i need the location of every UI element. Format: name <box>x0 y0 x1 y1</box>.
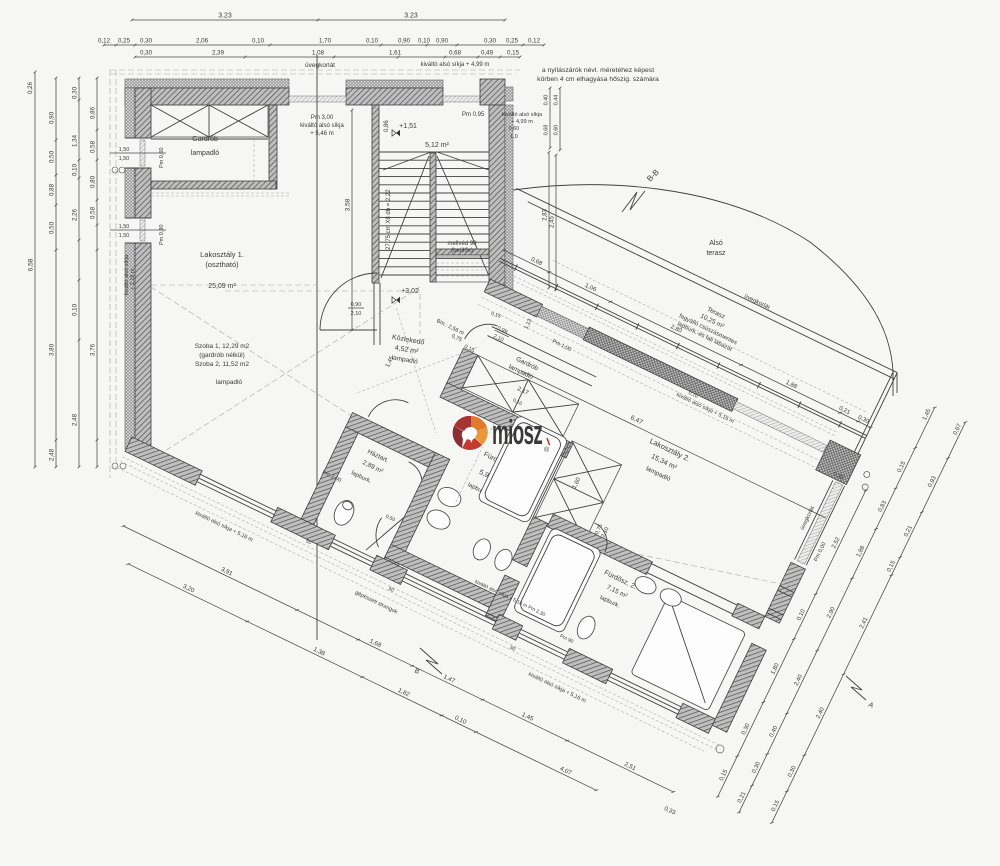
svg-text:0,12: 0,12 <box>528 38 541 45</box>
svg-text:3.23: 3.23 <box>404 13 418 20</box>
svg-text:0,40: 0,40 <box>544 95 550 106</box>
svg-text:2,48: 2,48 <box>72 413 79 426</box>
svg-text:2,45: 2,45 <box>550 216 556 228</box>
svg-text:lampadló: lampadló <box>191 150 220 157</box>
svg-text:mellvéd 90: mellvéd 90 <box>447 241 477 247</box>
svg-text:+ 5,46 m: + 5,46 m <box>310 131 334 137</box>
svg-text:0,10: 0,10 <box>252 38 265 45</box>
svg-text:0,12: 0,12 <box>98 38 111 45</box>
svg-text:Pm 0,90: Pm 0,90 <box>159 225 165 245</box>
svg-text:0,10: 0,10 <box>418 38 431 45</box>
svg-text:kiváltó alsó síkja: kiváltó alsó síkja <box>300 123 344 129</box>
svg-text:0,30: 0,30 <box>72 86 79 99</box>
svg-text:kiváltó alsó síkja + 4,99 m: kiváltó alsó síkja + 4,99 m <box>421 62 490 68</box>
svg-text:0,88: 0,88 <box>49 183 56 196</box>
svg-text:Pm 0,60: Pm 0,60 <box>159 148 165 168</box>
svg-text:0,44: 0,44 <box>554 95 560 106</box>
svg-text:miosz: miosz <box>492 413 542 451</box>
svg-text:1,08: 1,08 <box>312 50 325 57</box>
svg-text:0,30: 0,30 <box>484 38 497 45</box>
svg-text:kiváltó alsó síkja: kiváltó alsó síkja <box>502 112 543 118</box>
svg-text:Alsó: Alsó <box>709 240 723 247</box>
svg-text:0,90: 0,90 <box>398 38 411 45</box>
svg-text:Szoba 2, 11,52 m2: Szoba 2, 11,52 m2 <box>195 361 249 368</box>
svg-text:0,60: 0,60 <box>554 125 560 136</box>
svg-text:lampadló: lampadló <box>216 379 243 386</box>
svg-text:0,50: 0,50 <box>49 221 56 234</box>
svg-text:0,15: 0,15 <box>507 50 520 57</box>
svg-text:0,90: 0,90 <box>49 111 56 124</box>
svg-text:Gardrób: Gardrób <box>192 136 218 143</box>
svg-text:0,58: 0,58 <box>90 140 97 153</box>
svg-text:a nyílászárók névl. méretéhez: a nyílászárók névl. méretéhez képest <box>542 67 654 74</box>
svg-text:3.23: 3.23 <box>218 13 232 20</box>
svg-text:0,10: 0,10 <box>72 303 79 316</box>
svg-text:+ 4,99 m: + 4,99 m <box>511 119 533 125</box>
svg-text:+1,51: +1,51 <box>399 123 417 130</box>
svg-text:1,34: 1,34 <box>72 134 79 147</box>
svg-text:1,50: 1,50 <box>119 156 130 162</box>
svg-text:Pm 0,95: Pm 0,95 <box>462 112 485 118</box>
svg-text:0,60: 0,60 <box>509 126 520 132</box>
svg-text:2,06: 2,06 <box>196 38 209 45</box>
svg-text:1,61: 1,61 <box>389 50 402 57</box>
svg-text:(beülős): (beülős) <box>451 248 473 254</box>
svg-text:1,0: 1,0 <box>510 134 518 140</box>
svg-text:0,86: 0,86 <box>384 120 390 132</box>
svg-text:(osztható): (osztható) <box>205 260 239 269</box>
svg-text:5,12 m²: 5,12 m² <box>425 142 449 149</box>
svg-text:Pm 3,00: Pm 3,00 <box>311 115 334 121</box>
svg-text:0,30: 0,30 <box>140 50 153 57</box>
svg-text:0,10: 0,10 <box>72 163 79 176</box>
svg-text:2,39: 2,39 <box>212 50 225 57</box>
svg-text:0,50: 0,50 <box>49 150 56 163</box>
svg-text:Szoba 1, 12,29 m2: Szoba 1, 12,29 m2 <box>195 343 250 350</box>
svg-text:+ 2,19 m: + 2,19 m <box>130 268 136 290</box>
svg-text:0,58: 0,58 <box>90 206 97 219</box>
svg-text:3,58: 3,58 <box>345 198 352 211</box>
svg-text:0,49: 0,49 <box>481 50 494 57</box>
svg-text:1,50: 1,50 <box>119 233 130 239</box>
svg-text:1,70: 1,70 <box>319 38 332 45</box>
svg-text:0,26: 0,26 <box>27 81 34 94</box>
svg-text:0,30: 0,30 <box>140 38 153 45</box>
svg-text:3,76: 3,76 <box>90 343 97 356</box>
svg-text:1,50: 1,50 <box>119 147 130 153</box>
svg-text:(gardrób nélkül): (gardrób nélkül) <box>199 352 245 359</box>
svg-text:0,25: 0,25 <box>506 38 519 45</box>
svg-text:1,50: 1,50 <box>119 224 130 230</box>
svg-text:0,10: 0,10 <box>366 38 379 45</box>
svg-text:6,58: 6,58 <box>28 258 35 271</box>
svg-text:2,26: 2,26 <box>72 208 79 221</box>
svg-text:0,68: 0,68 <box>544 125 550 136</box>
svg-text:0,80: 0,80 <box>90 175 97 188</box>
svg-text:2,10: 2,10 <box>351 311 362 317</box>
svg-text:0,90: 0,90 <box>436 38 449 45</box>
svg-text:0,86: 0,86 <box>90 106 97 119</box>
svg-text:üvegkorlát: üvegkorlát <box>305 62 335 69</box>
svg-text:körben 4 cm elhagyása hőszig.: körben 4 cm elhagyása hőszig. számára <box>537 76 659 83</box>
svg-text:0,68: 0,68 <box>449 50 462 57</box>
svg-text:2,48: 2,48 <box>49 448 56 461</box>
svg-text:0,25: 0,25 <box>118 38 131 45</box>
svg-text:25,09 m²: 25,09 m² <box>208 283 236 290</box>
svg-text:0,90: 0,90 <box>351 302 362 308</box>
svg-text:Lakosztály 1.: Lakosztály 1. <box>200 250 244 259</box>
svg-text:terasz: terasz <box>706 250 726 257</box>
svg-text:3,80: 3,80 <box>49 343 56 356</box>
svg-text:27,75 cm X8 db = 2,22: 27,75 cm X8 db = 2,22 <box>386 189 392 250</box>
svg-text:®: ® <box>544 446 550 454</box>
